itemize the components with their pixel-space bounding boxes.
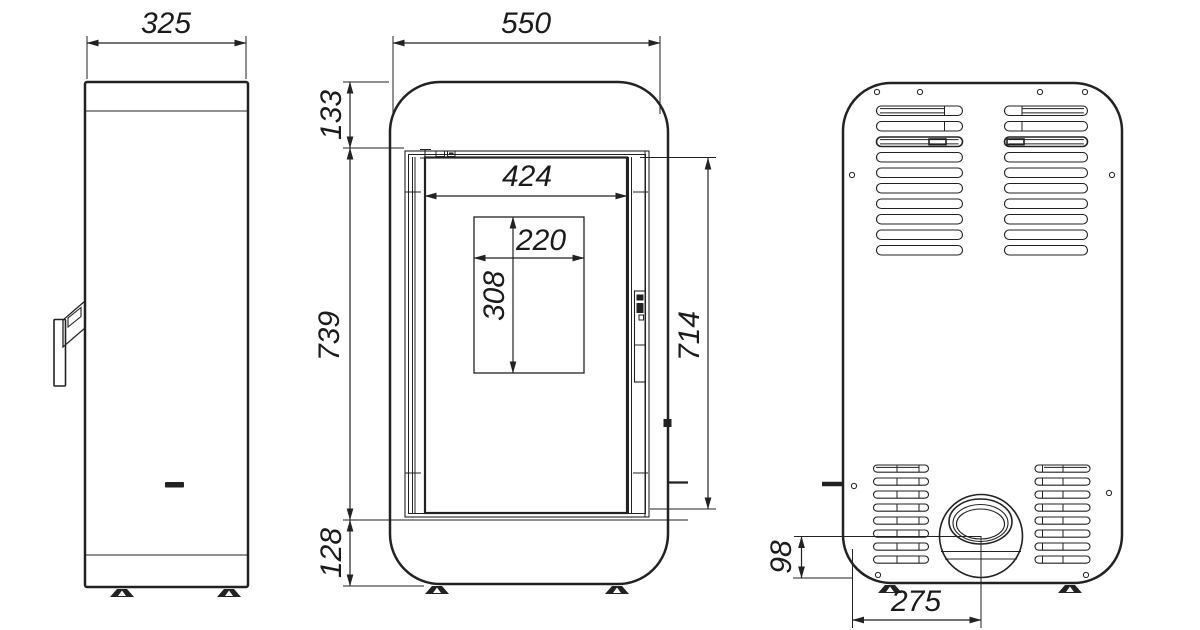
vent-slot <box>874 504 929 511</box>
dimension-label-glass-width: 220 <box>515 224 566 257</box>
dimension-label-glass-height: 308 <box>478 271 511 321</box>
vent-slot <box>874 491 929 498</box>
vent-slot <box>1005 246 1088 256</box>
front-foot-left <box>425 586 449 594</box>
screw-hole <box>1106 490 1111 495</box>
side-view: 325 <box>54 7 248 597</box>
vent-slot <box>877 106 963 116</box>
screw-hole <box>1083 572 1088 577</box>
screw-hole <box>851 483 856 488</box>
vent-slot <box>874 465 929 472</box>
vent-slot <box>877 215 963 225</box>
dimension-label-flue-height: 98 <box>765 540 798 574</box>
dimension-label-flue-offset: 275 <box>890 585 941 618</box>
screw-hole <box>875 572 880 577</box>
front-view: 550 133 739 128 424 220 308 <box>313 7 716 594</box>
back-body-outline <box>843 83 1122 583</box>
vent-slot <box>1005 122 1088 132</box>
vent-slot <box>877 199 963 209</box>
dim-door-inner-width: 424 <box>425 160 627 196</box>
vent-slot <box>877 184 963 194</box>
stove-dimension-drawing: 325 <box>0 0 1200 630</box>
dim-side-width: 325 <box>87 7 246 79</box>
vent-slot <box>877 122 963 132</box>
back-foot-right <box>1058 585 1082 593</box>
extension-lines <box>343 82 404 148</box>
vent-slot <box>877 246 963 256</box>
back-vents-top <box>877 106 1088 255</box>
handle-grip <box>54 320 66 387</box>
vent-slot <box>874 517 929 524</box>
dim-door-total-height: 714 <box>640 158 716 510</box>
vent-slot-dividers-right <box>1043 465 1088 563</box>
dimension-label-front-width: 550 <box>501 7 551 40</box>
dimension-label-door-inner-width: 424 <box>502 160 552 193</box>
side-foot-right <box>217 589 241 597</box>
flue-pipe-rim-middle <box>953 505 1008 542</box>
extension-lines <box>393 36 660 114</box>
side-handle <box>54 301 85 386</box>
dimension-label-base-section: 128 <box>315 528 348 578</box>
side-body-outline <box>85 82 248 587</box>
vent-slot <box>1005 199 1088 209</box>
door-top-control <box>420 150 455 159</box>
flue-pipe-rim-inner <box>957 509 1005 539</box>
latch-block-3 <box>639 315 644 320</box>
vent-slot <box>877 168 963 178</box>
screw-hole <box>1037 89 1042 94</box>
latch-block-1 <box>637 295 644 301</box>
dim-glass-height: 308 <box>478 217 513 373</box>
side-catch-block <box>664 419 672 427</box>
dimension-label-door-section: 739 <box>313 311 346 361</box>
dim-glass-width: 220 <box>474 224 584 258</box>
dimension-label-top-section: 133 <box>315 90 348 140</box>
control-box-left <box>436 151 445 157</box>
door-latch <box>635 291 646 382</box>
vent-slot <box>1005 168 1088 178</box>
screw-hole <box>849 172 854 177</box>
vent-slot <box>877 153 963 163</box>
control-dot <box>449 153 454 156</box>
latch-block-2 <box>637 303 644 313</box>
front-door <box>405 150 688 518</box>
vent-slot <box>874 478 929 485</box>
door-outer-frame <box>405 151 649 517</box>
screw-hole <box>874 89 879 94</box>
door-frame-lines <box>413 151 646 517</box>
dimension-label-side-width: 325 <box>141 7 191 40</box>
vent-slot <box>874 543 929 550</box>
screw-hole <box>917 89 922 94</box>
front-foot-right <box>605 586 629 594</box>
dimension-label-door-total-height: 714 <box>673 311 706 361</box>
side-vent-slot <box>165 482 184 488</box>
back-vents-bottom <box>874 465 1091 563</box>
vent-slot <box>874 556 929 563</box>
dim-base-section: 128 <box>315 520 424 586</box>
drawing-canvas: 325 <box>0 0 1200 630</box>
vent-slot <box>1005 184 1088 194</box>
screw-hole <box>1082 89 1087 94</box>
door-second-frame <box>409 155 646 514</box>
screw-hole <box>1109 172 1114 177</box>
door-panel <box>425 158 627 514</box>
vent-slot <box>877 230 963 240</box>
dim-front-width: 550 <box>393 7 660 114</box>
vent-slot <box>877 137 963 147</box>
vent-slot-dividers-left <box>876 465 919 563</box>
vent-slot <box>1005 215 1088 225</box>
vent-slot <box>1005 230 1088 240</box>
back-view: 98 275 <box>765 83 1122 628</box>
vent-slot <box>1005 106 1088 116</box>
side-foot-left <box>110 589 134 597</box>
dim-flue-center-to-base: 98 <box>765 537 981 579</box>
vent-slot <box>1005 153 1088 163</box>
